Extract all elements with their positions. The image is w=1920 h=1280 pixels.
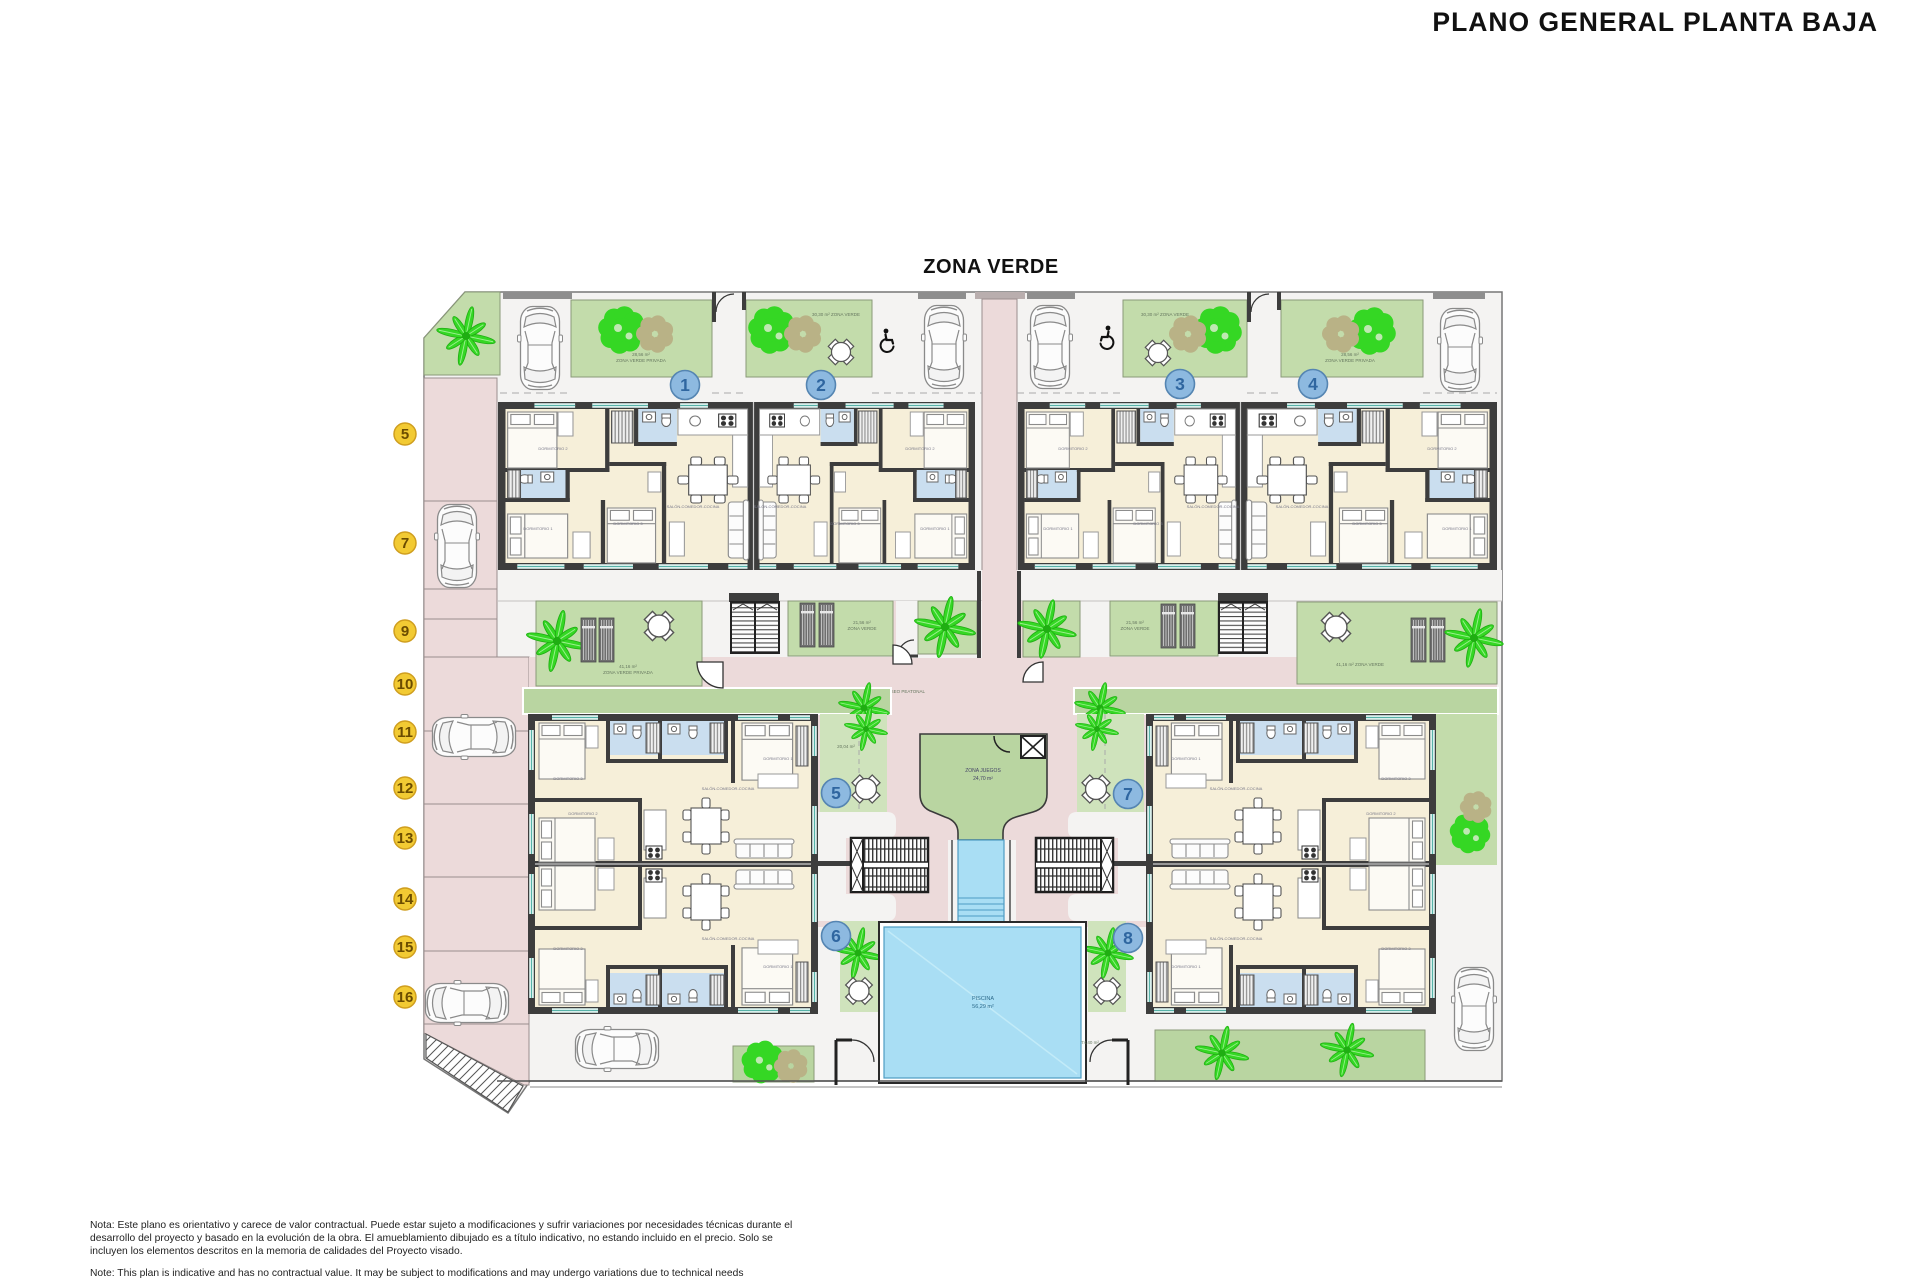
svg-text:SALÓN-COMEDOR-COCINA: SALÓN-COMEDOR-COCINA <box>1210 786 1263 791</box>
svg-text:DORMITORIO 3: DORMITORIO 3 <box>613 521 643 526</box>
svg-text:14: 14 <box>397 891 414 908</box>
svg-text:SALÓN-COMEDOR-COCINA: SALÓN-COMEDOR-COCINA <box>667 504 720 509</box>
svg-text:56,29 m²: 56,29 m² <box>972 1004 994 1010</box>
svg-text:3: 3 <box>1175 374 1185 394</box>
svg-text:SALÓN-COMEDOR-COCINA: SALÓN-COMEDOR-COCINA <box>1187 504 1240 509</box>
svg-text:ZONA VERDE: ZONA VERDE <box>923 256 1058 278</box>
svg-text:28,56 m²: 28,56 m² <box>632 352 650 357</box>
svg-text:DORMITORIO 3: DORMITORIO 3 <box>1381 946 1411 951</box>
svg-text:DORMITORIO 2: DORMITORIO 2 <box>905 446 935 451</box>
svg-text:5: 5 <box>831 783 841 803</box>
svg-text:DORMITORIO 1: DORMITORIO 1 <box>1171 964 1201 969</box>
svg-text:28,56 m²: 28,56 m² <box>1341 352 1359 357</box>
svg-text:21,56 m²: 21,56 m² <box>853 620 871 625</box>
svg-text:Nota: Este plano es orientativ: Nota: Este plano es orientativo y carece… <box>90 1220 792 1231</box>
svg-text:ZONA VERDE PRIVADA: ZONA VERDE PRIVADA <box>603 670 653 675</box>
svg-text:6: 6 <box>831 926 841 946</box>
svg-text:DORMITORIO 2: DORMITORIO 2 <box>1366 811 1396 816</box>
svg-text:7: 7 <box>1123 784 1133 804</box>
svg-text:DORMITORIO 2: DORMITORIO 2 <box>568 811 598 816</box>
svg-text:21,56 m²: 21,56 m² <box>1126 620 1144 625</box>
svg-text:DORMITORIO 3: DORMITORIO 3 <box>1352 521 1382 526</box>
svg-text:ZONA JUEGOS: ZONA JUEGOS <box>965 768 1001 774</box>
svg-text:DORMITORIO 1: DORMITORIO 1 <box>1043 526 1073 531</box>
svg-text:DORMITORIO 3: DORMITORIO 3 <box>1381 776 1411 781</box>
svg-text:16: 16 <box>397 989 414 1006</box>
svg-text:SALÓN-COMEDOR-COCINA: SALÓN-COMEDOR-COCINA <box>702 936 755 941</box>
svg-text:30,30 m² ZONA VERDE: 30,30 m² ZONA VERDE <box>1141 312 1189 317</box>
svg-text:2: 2 <box>816 375 826 395</box>
svg-text:PISCINA: PISCINA <box>972 996 994 1002</box>
svg-text:15: 15 <box>397 939 414 956</box>
svg-text:ZONA VERDE: ZONA VERDE <box>847 626 876 631</box>
svg-text:8: 8 <box>1123 928 1133 948</box>
svg-text:DORMITORIO 1: DORMITORIO 1 <box>523 526 553 531</box>
svg-text:13: 13 <box>397 830 414 847</box>
svg-text:DORMITORIO 2: DORMITORIO 2 <box>1427 446 1457 451</box>
svg-text:12: 12 <box>397 780 414 797</box>
svg-text:SALÓN-COMEDOR-COCINA: SALÓN-COMEDOR-COCINA <box>702 786 755 791</box>
svg-text:DORMITORIO 1: DORMITORIO 1 <box>763 756 793 761</box>
svg-text:9: 9 <box>401 623 409 640</box>
svg-text:4: 4 <box>1308 374 1318 394</box>
svg-text:11: 11 <box>397 724 413 741</box>
svg-text:DORMITORIO 2: DORMITORIO 2 <box>538 446 568 451</box>
svg-text:74,40 m²: 74,40 m² <box>1081 1040 1099 1045</box>
svg-text:Note: This plan is indicative: Note: This plan is indicative and has no… <box>90 1268 743 1279</box>
svg-text:10: 10 <box>397 676 414 693</box>
svg-text:PLANO GENERAL PLANTA BAJA: PLANO GENERAL PLANTA BAJA <box>1432 7 1878 37</box>
svg-text:41,16 m² ZONA VERDE: 41,16 m² ZONA VERDE <box>1336 662 1384 667</box>
svg-text:20,04 m²: 20,04 m² <box>837 744 855 749</box>
svg-text:ZONA VERDE: ZONA VERDE <box>1120 626 1149 631</box>
svg-text:30,30 m² ZONA VERDE: 30,30 m² ZONA VERDE <box>812 312 860 317</box>
svg-text:DORMITORIO 2: DORMITORIO 2 <box>1058 446 1088 451</box>
svg-text:SALÓN-COMEDOR-COCINA: SALÓN-COMEDOR-COCINA <box>1210 936 1263 941</box>
svg-text:24,70 m²: 24,70 m² <box>973 776 993 782</box>
svg-text:desarrollo del proyecto y basa: desarrollo del proyecto y basado en la e… <box>90 1233 773 1244</box>
svg-text:DORMITORIO 3: DORMITORIO 3 <box>830 521 860 526</box>
svg-text:ZONA VERDE PRIVADA: ZONA VERDE PRIVADA <box>1325 358 1375 363</box>
svg-text:DORMITORIO 1: DORMITORIO 1 <box>1171 756 1201 761</box>
svg-text:DORMITORIO 3: DORMITORIO 3 <box>553 776 583 781</box>
svg-text:DORMITORIO 1: DORMITORIO 1 <box>763 964 793 969</box>
svg-text:41,16 m²: 41,16 m² <box>619 664 637 669</box>
svg-text:DORMITORIO 3: DORMITORIO 3 <box>1133 521 1163 526</box>
svg-text:7: 7 <box>401 535 409 552</box>
svg-text:SALÓN-COMEDOR-COCINA: SALÓN-COMEDOR-COCINA <box>1276 504 1329 509</box>
svg-text:SALÓN-COMEDOR-COCINA: SALÓN-COMEDOR-COCINA <box>754 504 807 509</box>
svg-text:DORMITORIO 1: DORMITORIO 1 <box>920 526 950 531</box>
svg-text:5: 5 <box>401 426 409 443</box>
svg-text:ZONA VERDE PRIVADA: ZONA VERDE PRIVADA <box>616 358 666 363</box>
svg-text:incluyen los elementos descrit: incluyen los elementos descritos en la m… <box>90 1246 463 1257</box>
svg-text:DORMITORIO 3: DORMITORIO 3 <box>553 946 583 951</box>
svg-text:1: 1 <box>680 375 690 395</box>
svg-text:DORMITORIO 1: DORMITORIO 1 <box>1442 526 1472 531</box>
